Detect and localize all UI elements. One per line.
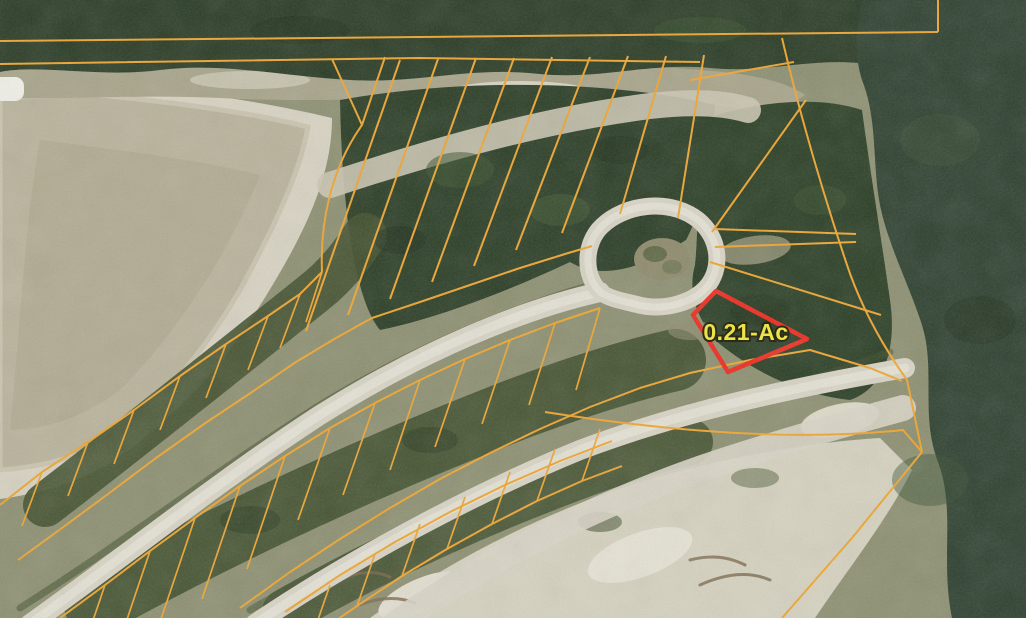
terrain-grain-texture — [0, 0, 1026, 618]
aerial-map-canvas[interactable]: 0.21-Ac — [0, 0, 1026, 618]
